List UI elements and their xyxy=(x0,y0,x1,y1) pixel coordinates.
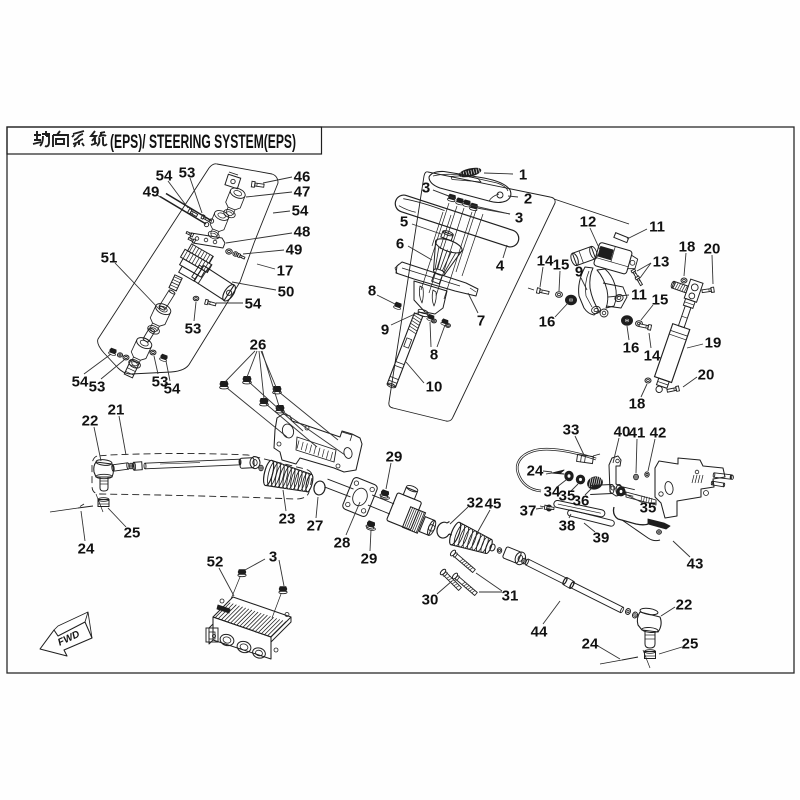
svg-text:19: 19 xyxy=(705,335,722,352)
svg-text:33: 33 xyxy=(563,422,580,439)
svg-text:43: 43 xyxy=(687,556,704,573)
svg-text:4: 4 xyxy=(496,258,505,275)
svg-text:39: 39 xyxy=(593,530,610,547)
svg-text:15: 15 xyxy=(652,292,669,309)
svg-text:50: 50 xyxy=(278,284,295,301)
svg-text:53: 53 xyxy=(89,379,106,396)
svg-text:44: 44 xyxy=(531,624,548,641)
svg-text:3: 3 xyxy=(515,210,523,227)
svg-text:18: 18 xyxy=(679,239,696,256)
svg-text:36: 36 xyxy=(573,493,590,510)
svg-text:54: 54 xyxy=(292,203,309,220)
svg-text:8: 8 xyxy=(430,347,438,364)
svg-text:16: 16 xyxy=(539,314,556,331)
svg-text:12: 12 xyxy=(580,214,597,231)
svg-text:45: 45 xyxy=(485,496,502,513)
svg-text:10: 10 xyxy=(426,379,443,396)
svg-text:53: 53 xyxy=(179,165,196,182)
svg-text:38: 38 xyxy=(559,518,576,535)
svg-text:51: 51 xyxy=(101,250,118,267)
svg-text:27: 27 xyxy=(307,518,324,535)
svg-text:42: 42 xyxy=(650,425,667,442)
svg-text:5: 5 xyxy=(400,214,408,231)
svg-text:54: 54 xyxy=(72,374,89,391)
svg-text:29: 29 xyxy=(361,551,378,568)
svg-text:6: 6 xyxy=(396,236,404,253)
svg-text:25: 25 xyxy=(682,636,699,653)
svg-text:26: 26 xyxy=(250,337,267,354)
svg-text:24: 24 xyxy=(78,541,95,558)
svg-text:14: 14 xyxy=(644,348,661,365)
svg-text:18: 18 xyxy=(629,396,646,413)
svg-text:1: 1 xyxy=(519,167,527,184)
svg-text:14: 14 xyxy=(537,253,554,270)
svg-text:8: 8 xyxy=(368,283,376,300)
svg-text:15: 15 xyxy=(553,257,570,274)
svg-text:17: 17 xyxy=(277,263,294,280)
svg-text:31: 31 xyxy=(502,588,519,605)
svg-text:11: 11 xyxy=(649,219,665,236)
svg-text:24: 24 xyxy=(527,463,544,480)
svg-text:7: 7 xyxy=(477,313,485,330)
svg-text:53: 53 xyxy=(185,321,202,338)
svg-text:52: 52 xyxy=(207,554,224,571)
svg-text:23: 23 xyxy=(279,511,296,528)
svg-text:28: 28 xyxy=(334,535,351,552)
svg-text:(EPS)/ STEERING SYSTEM(EPS): (EPS)/ STEERING SYSTEM(EPS) xyxy=(110,132,296,153)
svg-text:11: 11 xyxy=(631,287,647,304)
svg-text:47: 47 xyxy=(294,184,311,201)
svg-text:54: 54 xyxy=(164,381,181,398)
svg-text:22: 22 xyxy=(82,413,99,430)
svg-text:32: 32 xyxy=(467,495,484,512)
svg-text:24: 24 xyxy=(582,636,599,653)
svg-text:2: 2 xyxy=(524,191,532,208)
svg-text:30: 30 xyxy=(422,592,439,609)
svg-text:3: 3 xyxy=(269,549,277,566)
svg-text:25: 25 xyxy=(124,525,141,542)
svg-text:49: 49 xyxy=(286,242,303,259)
svg-text:22: 22 xyxy=(676,597,693,614)
svg-text:13: 13 xyxy=(653,254,670,271)
svg-text:54: 54 xyxy=(245,296,262,313)
svg-text:3: 3 xyxy=(422,180,430,197)
svg-text:16: 16 xyxy=(623,340,640,357)
svg-text:54: 54 xyxy=(156,168,173,185)
svg-text:20: 20 xyxy=(704,241,721,258)
svg-text:9: 9 xyxy=(575,264,583,281)
svg-text:29: 29 xyxy=(386,449,403,466)
svg-text:48: 48 xyxy=(294,224,311,241)
svg-text:9: 9 xyxy=(381,322,389,339)
svg-text:41: 41 xyxy=(629,425,646,442)
svg-text:49: 49 xyxy=(143,184,160,201)
svg-text:20: 20 xyxy=(698,367,715,384)
svg-text:35: 35 xyxy=(640,500,657,517)
svg-text:21: 21 xyxy=(108,402,125,419)
svg-text:37: 37 xyxy=(520,503,537,520)
